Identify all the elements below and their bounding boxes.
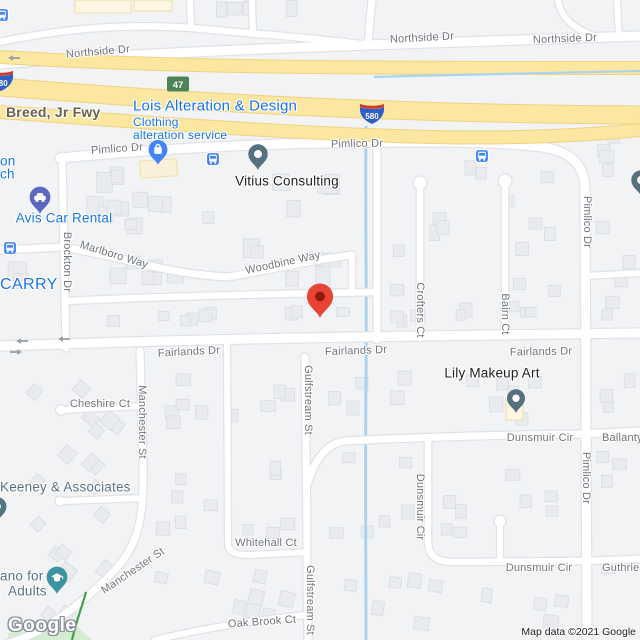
- route-47-shield: 47: [167, 77, 189, 92]
- poi-label-adults-school-line1[interactable]: ano for: [0, 569, 43, 584]
- poi-label-lois-alteration[interactable]: Lois Alteration & Design: [133, 98, 297, 115]
- map-graphics: 47 580 580: [0, 0, 640, 640]
- creek: [366, 126, 367, 640]
- poi-category-lois-line1: Clothing: [133, 115, 179, 129]
- right-edge-pin[interactable]: [631, 170, 640, 196]
- street-label-dunsmuir-cir: Dunsmuir Cir: [507, 432, 574, 444]
- keeney-pin[interactable]: [0, 497, 6, 522]
- poi-label-keeney-associates[interactable]: Keeney & Associates: [0, 480, 131, 495]
- poi-label-avis-car-rental[interactable]: Avis Car Rental: [16, 211, 113, 226]
- street-label-manchester-st: Manchester St: [136, 385, 148, 459]
- destination-marker[interactable]: [307, 283, 333, 318]
- poi-label-lily-makeup-art[interactable]: Lily Makeup Art: [444, 366, 539, 381]
- street-label-fairlands-dr: Fairlands Dr: [325, 344, 388, 358]
- poi-category-lois-line2: alteration service: [133, 128, 227, 142]
- street-label-dunsmuir-cir: Dunsmuir Cir: [506, 562, 573, 574]
- street-label-crofters-ct: Crofters Ct: [414, 282, 426, 337]
- vitius-pin[interactable]: [248, 144, 267, 170]
- map-attribution[interactable]: Map data ©2021 Google: [521, 626, 636, 638]
- poi-label-left-edge-line2: ch: [0, 167, 15, 182]
- bus-stop-icon[interactable]: [4, 242, 17, 255]
- svg-text:580: 580: [0, 79, 8, 88]
- interstate-580-shield: 580: [360, 104, 384, 124]
- street-label-guthrie: Guthrie: [602, 562, 639, 574]
- bus-stop-icon[interactable]: [0, 9, 9, 22]
- street-label-bairn-ct: Bairn Ct: [499, 293, 511, 334]
- street-label-cheshire-ct: Cheshire Ct: [70, 398, 130, 410]
- street-label-northside-dr: Northside Dr: [533, 32, 598, 46]
- street-label-brockton-dr: Brockton Dr: [61, 232, 73, 292]
- bus-stop-icon[interactable]: [476, 150, 489, 163]
- street-label-whitehall-ct: Whitehall Ct: [235, 537, 297, 549]
- freeway-layer: [0, 57, 640, 137]
- street-label-fairlands-dr: Fairlands Dr: [510, 345, 573, 358]
- street-label-dunsmuir-cir: Dunsmuir Cir: [414, 474, 426, 541]
- street-label-pimlico-dr: Pimlico Dr: [580, 452, 592, 504]
- poi-label-carry-partial[interactable]: CARRY: [0, 276, 58, 294]
- map-canvas[interactable]: 47 580 580 Northside Dr Northside Dr Nor…: [0, 0, 640, 640]
- street-label-gulfstream-st: Gulfstream St: [304, 565, 316, 635]
- street-label-pimlico-dr: Pimlico Dr: [581, 196, 593, 248]
- adults-school-pin[interactable]: [47, 567, 68, 594]
- google-logo[interactable]: Google: [8, 615, 76, 637]
- svg-text:47: 47: [173, 80, 184, 91]
- freeway-label-breed-jr-fwy: Breed, Jr Fwy: [6, 104, 100, 120]
- poi-label-vitius-consulting[interactable]: Vitius Consulting: [235, 174, 339, 189]
- street-label-pimlico-dr: Pimlico Dr: [331, 138, 383, 151]
- street-label-gulfstream-st: Gulfstream St: [302, 365, 314, 435]
- bus-stop-icon[interactable]: [207, 153, 220, 166]
- street-label-ballantyne-partial: Ballanty: [602, 432, 640, 444]
- poi-label-adults-school-line2[interactable]: Adults: [8, 584, 47, 599]
- svg-text:580: 580: [365, 112, 379, 121]
